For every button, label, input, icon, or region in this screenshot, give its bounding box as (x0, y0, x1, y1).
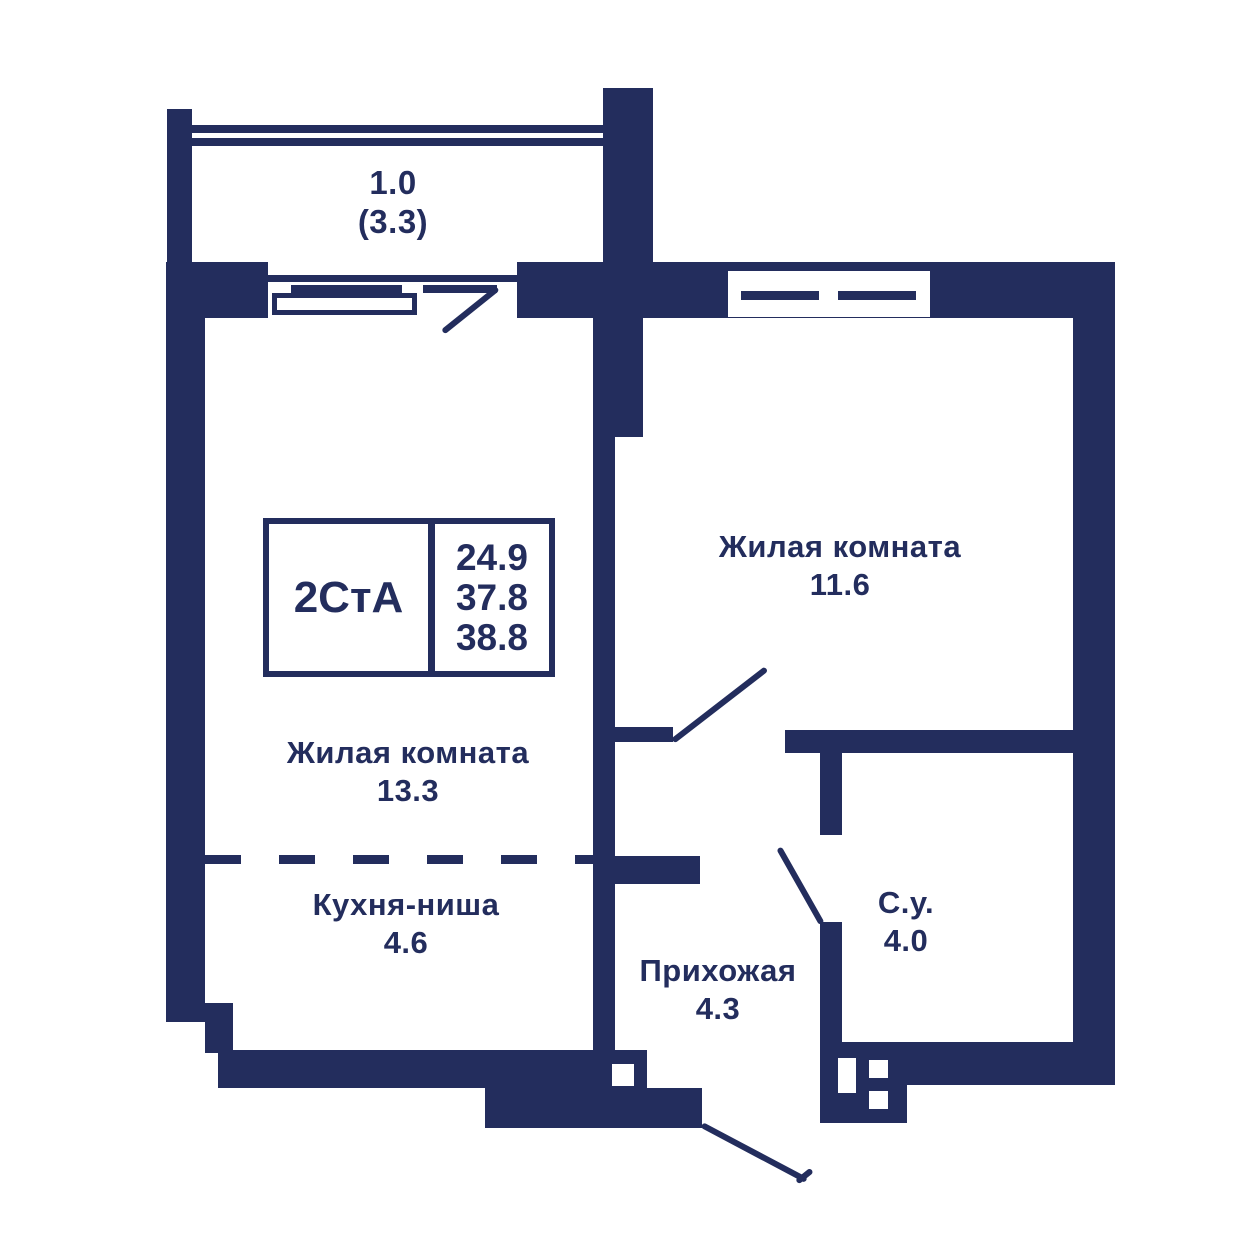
apartment-type-code: 2СтА (269, 524, 428, 671)
kitchen-hallway-stub-wall (593, 856, 700, 884)
left-outer-wall-step (205, 1003, 233, 1053)
vent-shaft-hole-2 (869, 1060, 888, 1078)
apartment-areas: 24.9 37.8 38.8 (435, 524, 549, 671)
room-label-bathroom: С.у. 4.0 (836, 884, 976, 960)
room-name: Кухня-ниша (226, 886, 586, 924)
bottom-wall-lower (485, 1088, 702, 1128)
living-right-window-frame-dash-2 (838, 291, 916, 300)
area-main: 37.8 (456, 578, 528, 618)
balcony-window-line-inner (192, 138, 603, 146)
middle-wall-wide (593, 318, 643, 437)
entrance-door-swing-line (701, 1122, 808, 1183)
right-outer-wall (1073, 262, 1115, 1085)
balcony-right-wall (603, 88, 653, 262)
room-label-kitchen-niche: Кухня-ниша 4.6 (226, 886, 586, 962)
apartment-stats-box: 2СтА 24.9 37.8 38.8 (263, 518, 555, 677)
bottom-wall-upper (218, 1050, 647, 1088)
room-name: Жилая комната (658, 528, 1022, 566)
left-outer-wall (166, 262, 205, 1022)
room-area: 13.3 (228, 772, 588, 810)
balcony-window-frame-dash-2 (423, 285, 497, 293)
room-area: 4.0 (836, 922, 976, 960)
bathroom-left-wall-upper (820, 745, 842, 835)
floor-plan: 1.0 (3.3) Жилая комната 11.6 Жилая комна… (0, 0, 1248, 1248)
room-name: С.у. (836, 884, 976, 922)
balcony-label: 1.0 (3.3) (243, 163, 543, 241)
room-name: Прихожая (598, 952, 838, 990)
balcony-window-sill-box (272, 293, 417, 315)
balcony-area-coefficient: 1.0 (243, 163, 543, 202)
living-right-window-slot-bottom (728, 304, 930, 317)
room-label-living-left: Жилая комната 13.3 (228, 734, 588, 810)
balcony-window-line-outer (192, 125, 603, 133)
balcony-window-frame-dash-1 (291, 285, 402, 293)
bottom-wall-vent-notch (612, 1064, 634, 1086)
area-living: 24.9 (456, 538, 528, 578)
area-total: 38.8 (456, 618, 528, 658)
living-right-door-swing-line (671, 666, 768, 743)
balcony-area-full: (3.3) (243, 202, 543, 241)
kitchen-zone-dashed-line (205, 855, 593, 864)
balcony-left-wall (167, 109, 192, 262)
vent-shaft-block (820, 1042, 907, 1123)
room-label-living-right: Жилая комната 11.6 (658, 528, 1022, 604)
room-area: 4.6 (226, 924, 586, 962)
bathroom-door-swing-line (776, 847, 824, 926)
room-label-hallway: Прихожая 4.3 (598, 952, 838, 1028)
room-name: Жилая комната (228, 734, 588, 772)
vent-shaft-hole-3 (869, 1091, 888, 1109)
room-area: 4.3 (598, 990, 838, 1028)
living-right-bottom-wall-left (593, 727, 673, 742)
bathroom-bottom-wall (903, 1042, 1115, 1085)
balcony-door-window-head-line (268, 275, 517, 282)
living-right-window-slot-top (728, 271, 930, 287)
vent-shaft-hole-1 (838, 1058, 856, 1093)
balcony-door-swing-line (441, 286, 499, 334)
living-right-window-frame-dash-1 (741, 291, 819, 300)
stats-box-divider (428, 524, 435, 671)
room-area: 11.6 (658, 566, 1022, 604)
